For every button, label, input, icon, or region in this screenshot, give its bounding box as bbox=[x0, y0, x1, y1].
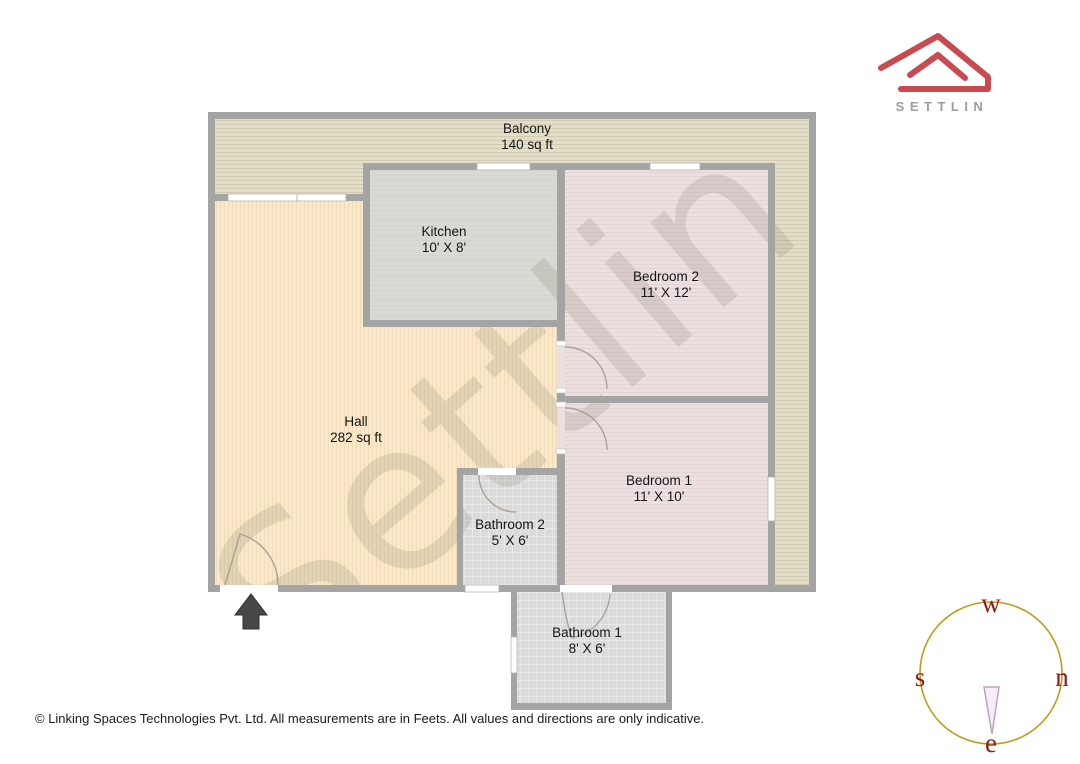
compass-right-letter: n bbox=[1055, 662, 1069, 692]
brand-logo: SETTLIN bbox=[881, 36, 988, 114]
bedroom2-window bbox=[650, 163, 700, 170]
bedroom2-label: Bedroom 2 bbox=[633, 269, 699, 284]
compass: w s n e bbox=[915, 588, 1070, 758]
bedroom1-window bbox=[768, 477, 775, 521]
hall-size: 282 sq ft bbox=[330, 430, 382, 445]
bathroom1-door-opening bbox=[560, 585, 612, 592]
balcony-floor-step bbox=[215, 163, 363, 194]
bedroom1-label: Bedroom 1 bbox=[626, 473, 692, 488]
wall-balcony-inner-top bbox=[363, 163, 768, 170]
wall-balcony-inner-right bbox=[768, 163, 775, 585]
floor-plan-document: Settlin bbox=[0, 0, 1080, 764]
settlin-roof-icon bbox=[881, 36, 988, 89]
bathroom1-size: 8' X 6' bbox=[569, 641, 606, 656]
bedroom1-size: 11' X 10' bbox=[634, 489, 685, 504]
bathroom2-size: 5' X 6' bbox=[492, 533, 529, 548]
wall-kitchen-left bbox=[363, 163, 370, 327]
compass-bottom-letter: e bbox=[985, 728, 997, 758]
wall-bathroom1-bottom bbox=[511, 703, 672, 710]
wall-hall-bedrooms-upper bbox=[557, 163, 565, 345]
copyright-text: © Linking Spaces Technologies Pvt. Ltd. … bbox=[35, 711, 704, 726]
bathroom2-label: Bathroom 2 bbox=[475, 517, 545, 532]
kitchen-size: 10' X 8' bbox=[422, 240, 466, 255]
balcony-label: Balcony bbox=[503, 121, 551, 136]
kitchen-window bbox=[477, 163, 530, 170]
bedroom2-size: 11' X 12' bbox=[641, 285, 692, 300]
brand-name: SETTLIN bbox=[896, 99, 989, 114]
wall-kitchen-bottom bbox=[363, 320, 565, 327]
compass-needle-icon bbox=[984, 687, 999, 734]
door-jamb bbox=[556, 402, 566, 407]
wall-outer-right bbox=[809, 112, 816, 592]
wall-outer-bottom bbox=[208, 585, 816, 592]
floor-plan-canvas: Settlin bbox=[0, 0, 1080, 764]
door-jamb bbox=[556, 341, 566, 346]
door-jamb bbox=[556, 388, 566, 393]
wall-outer-top bbox=[208, 112, 816, 119]
hall-balcony-window bbox=[228, 194, 346, 201]
kitchen-label: Kitchen bbox=[421, 224, 466, 239]
bedroom2-door-opening bbox=[557, 345, 565, 389]
wall-outer-left bbox=[208, 112, 215, 592]
wall-bedroom-divider bbox=[565, 396, 768, 403]
door-jamb bbox=[556, 449, 566, 454]
entrance-door-opening bbox=[220, 585, 278, 592]
compass-left-letter: s bbox=[915, 662, 926, 692]
bedroom1-door-opening bbox=[557, 406, 565, 450]
bathroom2-door-opening bbox=[478, 468, 516, 475]
hall-label: Hall bbox=[344, 414, 367, 429]
entrance-arrow-icon bbox=[235, 594, 267, 629]
wall-bathroom2-left bbox=[457, 468, 463, 585]
bathroom1-window bbox=[511, 637, 517, 673]
bathroom1-label: Bathroom 1 bbox=[552, 625, 622, 640]
bottom-wall-window bbox=[465, 585, 499, 592]
balcony-size: 140 sq ft bbox=[501, 137, 553, 152]
compass-top-letter: w bbox=[981, 588, 1001, 618]
wall-bathroom1-right bbox=[666, 592, 672, 710]
